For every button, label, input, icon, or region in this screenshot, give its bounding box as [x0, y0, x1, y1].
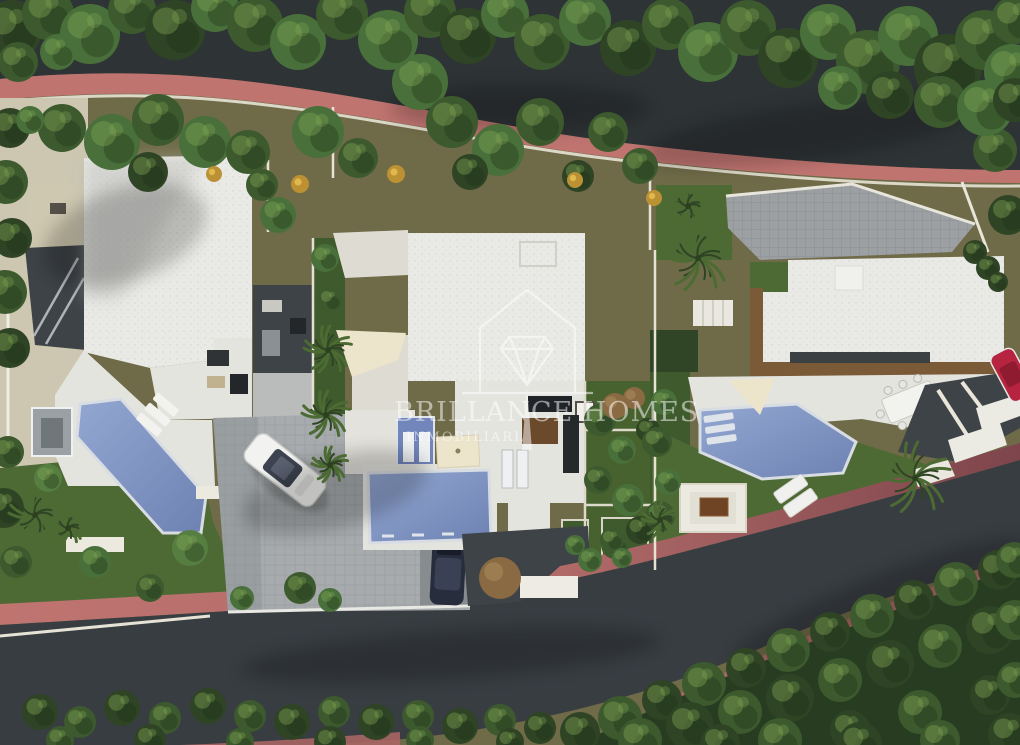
tree: [495, 132, 508, 145]
tree: [597, 470, 604, 477]
palm-trunk: [327, 462, 333, 468]
tree: [14, 551, 22, 559]
street-tree: [785, 37, 800, 52]
hedge-shrub: [660, 686, 670, 696]
tree: [3, 277, 14, 288]
tree: [2, 494, 12, 504]
palm-trunk: [695, 255, 701, 261]
tree: [10, 224, 20, 234]
tree: [298, 577, 306, 585]
tree: [589, 552, 595, 558]
tree: [621, 440, 628, 447]
shower-mat-inner: [41, 418, 63, 448]
terrace-rug: [207, 376, 225, 388]
villa3-roof-lawn-notch: [750, 262, 790, 292]
hedge-shrub: [918, 697, 929, 708]
hedge-shrub: [888, 647, 900, 659]
villa3-roof-hatch: [835, 266, 863, 290]
palm-trunk: [685, 203, 691, 209]
tree: [468, 159, 477, 168]
palm-trunk: [323, 412, 329, 418]
tree: [276, 202, 285, 211]
flowering-shrub: [294, 178, 301, 185]
street-tree: [16, 48, 26, 58]
tree: [29, 110, 36, 117]
street-tree: [172, 9, 187, 24]
tree: [993, 135, 1004, 146]
tree: [606, 118, 616, 128]
street-tree: [888, 78, 900, 90]
villa2-entry-walk: [333, 230, 408, 278]
tree: [974, 244, 980, 250]
hedge-shrub: [163, 707, 171, 715]
hedge-shrub: [59, 730, 66, 737]
hedge-shrub: [239, 732, 246, 739]
villa2-roof: [408, 233, 585, 381]
tree: [8, 334, 18, 344]
tree: [997, 275, 1002, 280]
tree: [93, 551, 101, 559]
tree: [621, 551, 626, 556]
wood-deck-vertical: [750, 288, 763, 374]
street-tree: [9, 9, 24, 24]
hedge-shrub: [332, 701, 340, 709]
tree: [146, 158, 156, 168]
villa1-side-patio: [253, 373, 313, 418]
tree: [538, 105, 550, 117]
hedge-shrub: [870, 601, 881, 612]
street-tree: [865, 40, 881, 56]
flowering-shrub: [649, 193, 655, 199]
watermark-subtitle-text: INMOBILIARIA: [406, 430, 533, 445]
hedge-shrub: [120, 695, 129, 704]
palm-trunk: [65, 525, 71, 531]
hedge-shrub: [912, 586, 922, 596]
tree: [329, 292, 335, 298]
aerial-site-plan-screenshot: BRILLANCE HOMES INMOBILIARIA: [0, 0, 1020, 745]
hedge-shrub: [788, 681, 800, 693]
hedge-shrub: [509, 732, 516, 739]
palm-trunk: [32, 512, 38, 518]
hedge-shrub: [786, 635, 797, 646]
hedge-shrub: [290, 709, 299, 718]
street-tree: [838, 73, 849, 84]
nook-table: [700, 498, 728, 516]
hedge-shrub: [702, 669, 713, 680]
hedge-shrub: [328, 731, 336, 739]
tree: [574, 538, 579, 543]
hedge-shrub: [938, 631, 949, 642]
hedge-shrub: [744, 654, 754, 664]
flowering-shrub: [570, 175, 576, 181]
tree: [417, 62, 431, 76]
hedge-shrub: [578, 718, 588, 728]
tree: [202, 124, 215, 137]
tree: [449, 104, 462, 117]
hedge-shrub: [458, 713, 467, 722]
tree: [188, 535, 197, 544]
watermark-brand-text: BRILLANCE HOMES: [394, 397, 699, 428]
tree: [576, 165, 584, 173]
tree: [241, 590, 247, 596]
street-tree: [937, 84, 950, 97]
pergola-kitchen: [262, 330, 280, 356]
hedge-shrub: [618, 703, 629, 714]
tree: [260, 174, 268, 182]
flowering-shrub: [209, 169, 215, 175]
flowering-shrub: [390, 168, 397, 175]
palm-trunk: [325, 347, 331, 353]
hedge-shrub: [419, 730, 426, 737]
hedge-shrub: [858, 729, 869, 740]
hedge-shrub: [206, 693, 215, 702]
palm-trunk: [657, 517, 663, 523]
tree: [638, 153, 647, 162]
hedge-shrub: [828, 618, 838, 628]
tree: [626, 489, 634, 497]
hedge-shrub: [838, 665, 849, 676]
hedge-shrub: [38, 699, 47, 708]
street-tree: [252, 4, 266, 18]
tree: [47, 468, 54, 475]
tree: [109, 122, 123, 136]
street-tree: [905, 15, 920, 30]
street-tree: [56, 39, 65, 48]
tree: [4, 167, 15, 178]
street-tree: [87, 13, 102, 28]
villa3-window-strip: [790, 352, 930, 363]
white-low-wall: [520, 576, 578, 598]
navy-car-roof: [434, 557, 462, 590]
tree: [6, 441, 14, 449]
tree: [329, 592, 335, 598]
hedge-shrub: [738, 697, 749, 708]
patio-table: [50, 203, 66, 214]
hedge-shrub: [374, 709, 383, 718]
terrace-door: [502, 450, 513, 488]
pool-steps: [703, 412, 737, 445]
street-tree: [825, 12, 839, 26]
tree: [149, 578, 156, 585]
hedge-shrub: [78, 711, 86, 719]
hedge-shrub: [1008, 720, 1019, 731]
tree: [611, 532, 617, 538]
pergola-bbq: [290, 318, 306, 334]
dark-planting-bed: [650, 330, 698, 372]
tree: [315, 114, 328, 127]
tree: [1006, 201, 1016, 211]
tree: [356, 144, 366, 154]
pergola-table: [262, 300, 282, 312]
tree: [246, 137, 257, 148]
site-plan-render: BRILLANCE HOMES INMOBILIARIA: [0, 0, 1020, 745]
palm-trunk: [912, 475, 918, 481]
tree: [667, 473, 674, 480]
terrace-sofa: [207, 350, 229, 366]
hedge-shrub: [638, 725, 649, 736]
hedge-shrub: [718, 730, 728, 740]
terrace-table: [230, 374, 248, 394]
street-tree: [385, 19, 400, 34]
tree: [60, 111, 72, 123]
tree: [324, 248, 331, 255]
rusty-shrub: [484, 562, 503, 581]
hedge-shrub: [954, 569, 965, 580]
wood-deck-horizontal: [750, 362, 995, 376]
hedge-shrub: [538, 717, 546, 725]
street-tree: [582, 2, 595, 15]
hedge-shrub: [938, 726, 948, 736]
street-tree: [705, 31, 720, 46]
street-tree: [625, 28, 639, 42]
hedge-shrub: [498, 709, 506, 717]
hedge-shrub: [148, 729, 156, 737]
hedge-shrub: [416, 705, 424, 713]
hedge-shrub: [688, 709, 700, 721]
street-tree: [295, 22, 309, 36]
street-tree: [665, 6, 678, 19]
street-tree: [465, 16, 479, 30]
tree: [155, 102, 168, 115]
terrace-door: [517, 450, 528, 488]
hedge-shrub: [778, 725, 789, 736]
tree: [656, 432, 664, 440]
tree: [987, 260, 993, 266]
street-tree: [539, 22, 553, 36]
hedge-shrub: [248, 705, 256, 713]
street-tree: [745, 8, 759, 22]
hedge-shrub: [988, 681, 998, 691]
